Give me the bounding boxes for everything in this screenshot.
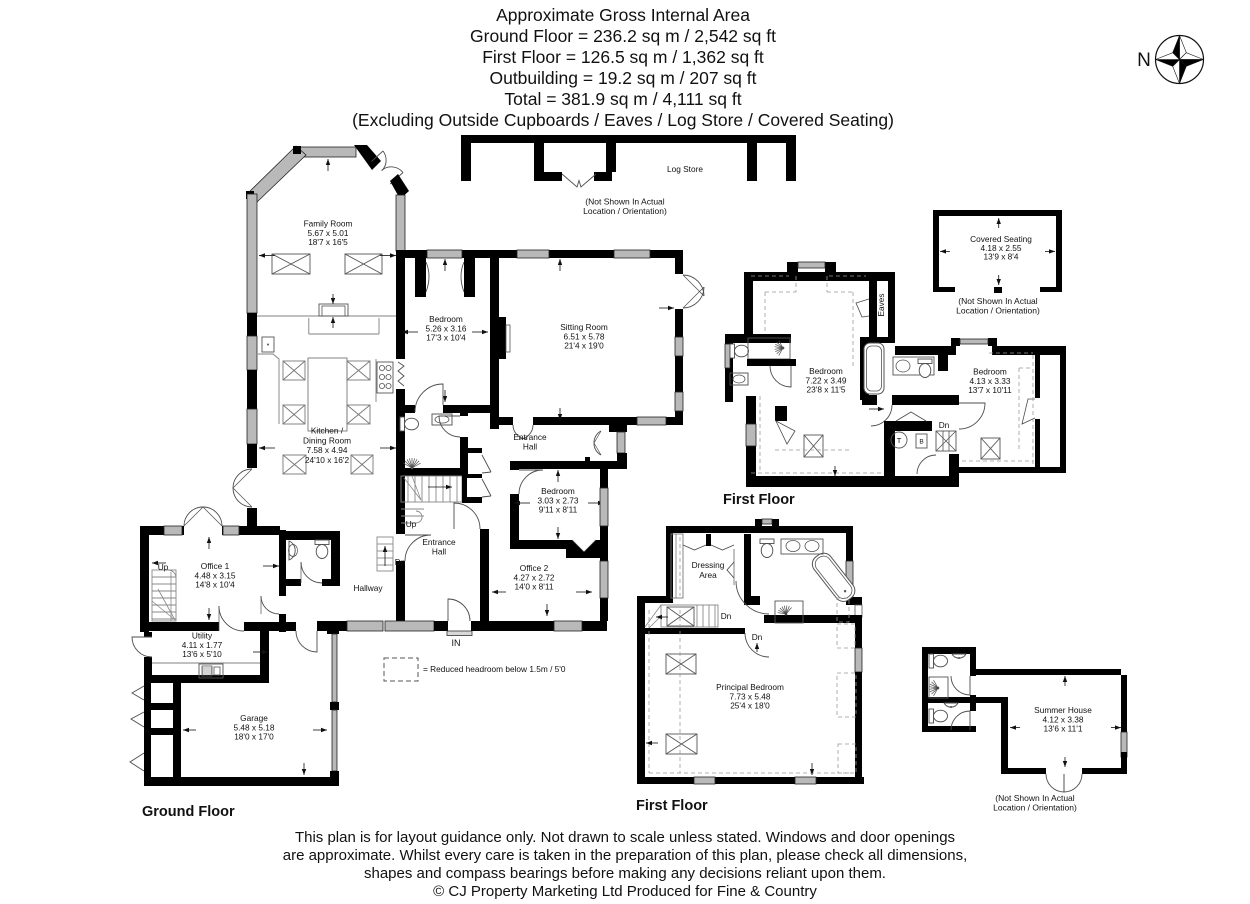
svg-text:shapes and compass bearings be: shapes and compass bearings before makin… [364, 865, 886, 882]
svg-text:Hallway: Hallway [353, 583, 383, 593]
svg-text:Dn: Dn [939, 420, 950, 430]
svg-text:Entrance: Entrance [422, 537, 456, 547]
svg-text:Outbuilding = 19.2 sq m / 207: Outbuilding = 19.2 sq m / 207 sq ft [489, 68, 756, 88]
svg-text:Dressing: Dressing [692, 560, 725, 570]
svg-text:Log Store: Log Store [667, 164, 703, 174]
svg-text:21'4 x 19'0: 21'4 x 19'0 [564, 341, 604, 351]
svg-text:9'11 x 8'11: 9'11 x 8'11 [539, 505, 578, 515]
svg-text:Area: Area [699, 570, 717, 580]
svg-text:This plan is for layout guidan: This plan is for layout guidance only. N… [295, 829, 955, 846]
svg-text:Kitchen /: Kitchen / [311, 426, 344, 436]
svg-text:17'3 x 10'4: 17'3 x 10'4 [426, 333, 466, 343]
svg-text:First Floor: First Floor [636, 798, 708, 814]
svg-text:14'8 x 10'4: 14'8 x 10'4 [195, 580, 235, 590]
svg-text:Location / Orientation): Location / Orientation) [583, 206, 667, 216]
svg-text:(Not Shown In Actual: (Not Shown In Actual [585, 197, 664, 207]
svg-text:Dn: Dn [721, 611, 732, 621]
svg-text:Hall: Hall [432, 547, 446, 557]
svg-text:18'0 x 17'0: 18'0 x 17'0 [234, 732, 274, 742]
svg-text:7.58 x 4.94: 7.58 x 4.94 [306, 445, 347, 455]
svg-text:Up: Up [158, 562, 169, 572]
svg-text:14'0 x 8'11: 14'0 x 8'11 [515, 582, 554, 592]
svg-text:Ground Floor: Ground Floor [142, 804, 235, 820]
svg-text:Dn: Dn [395, 557, 406, 567]
svg-text:13'6 x 11'1: 13'6 x 11'1 [1044, 724, 1083, 734]
svg-text:Location / Orientation): Location / Orientation) [956, 306, 1040, 316]
svg-text:(Not Shown In Actual: (Not Shown In Actual [958, 296, 1037, 306]
svg-text:T: T [897, 436, 902, 445]
svg-text:IN: IN [452, 638, 461, 648]
svg-text:© CJ Property Marketing Ltd Pr: © CJ Property Marketing Ltd Produced for… [433, 883, 817, 900]
svg-text:24'10 x 16'2: 24'10 x 16'2 [305, 455, 350, 465]
svg-text:N: N [1137, 50, 1151, 71]
svg-text:are approximate. Whilst every: are approximate. Whilst every care is ta… [283, 847, 968, 864]
svg-text:13'9 x 8'4: 13'9 x 8'4 [984, 252, 1019, 262]
svg-text:18'7 x 16'5: 18'7 x 16'5 [308, 237, 348, 247]
svg-text:Dining Room: Dining Room [303, 435, 351, 445]
svg-text:Eaves: Eaves [876, 293, 886, 316]
svg-text:Approximate Gross Internal Are: Approximate Gross Internal Area [496, 5, 750, 25]
svg-text:25'4 x 18'0: 25'4 x 18'0 [730, 701, 770, 711]
svg-text:B: B [919, 439, 923, 446]
svg-text:Hall: Hall [523, 442, 537, 452]
svg-text:Total = 381.9 sq m / 4,111 sq: Total = 381.9 sq m / 4,111 sq ft [504, 89, 741, 109]
svg-text:23'8 x 11'5: 23'8 x 11'5 [807, 385, 846, 395]
svg-text:Dn: Dn [752, 632, 763, 642]
svg-text:(Not Shown In Actual: (Not Shown In Actual [995, 793, 1074, 803]
svg-text:= Reduced headroom below 1.5m: = Reduced headroom below 1.5m / 5'0 [423, 664, 566, 674]
svg-text:Location / Orientation): Location / Orientation) [993, 803, 1077, 813]
svg-text:First Floor: First Floor [723, 492, 795, 508]
svg-text:Ground Floor = 236.2 sq m / 2,: Ground Floor = 236.2 sq m / 2,542 sq ft [470, 26, 776, 46]
svg-text:13'7 x 10'11: 13'7 x 10'11 [968, 385, 1012, 395]
svg-text:13'6 x 5'10: 13'6 x 5'10 [182, 649, 222, 659]
svg-text:Up: Up [406, 519, 417, 529]
svg-text:Entrance: Entrance [513, 432, 547, 442]
svg-text:(Excluding Outside Cupboards /: (Excluding Outside Cupboards / Eaves / L… [352, 110, 894, 130]
svg-text:First Floor = 126.5 sq m / 1,3: First Floor = 126.5 sq m / 1,362 sq ft [482, 47, 764, 67]
